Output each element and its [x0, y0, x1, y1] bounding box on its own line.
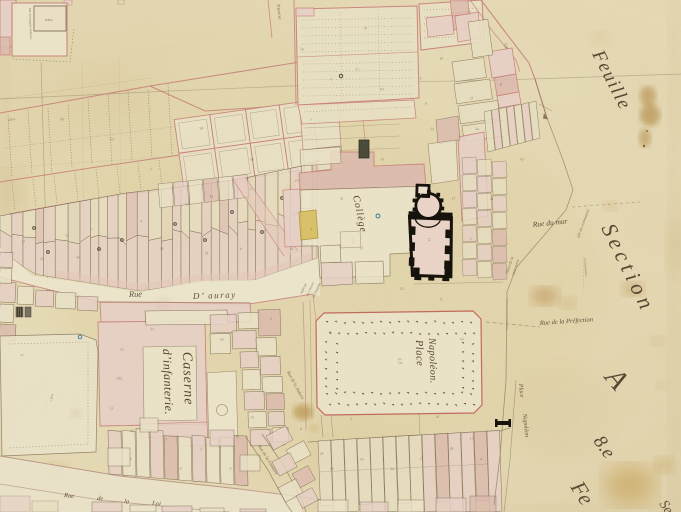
- svg-text:19: 19: [295, 179, 299, 183]
- svg-text:9: 9: [240, 247, 242, 251]
- svg-text:Place: Place: [413, 339, 425, 367]
- svg-text:17: 17: [470, 437, 474, 441]
- svg-text:41: 41: [490, 197, 494, 201]
- svg-text:54: 54: [300, 47, 304, 51]
- svg-text:Rue: Rue: [63, 492, 75, 500]
- svg-text:12: 12: [355, 67, 359, 71]
- svg-text:41: 41: [290, 247, 294, 251]
- svg-text:Rue: Rue: [128, 289, 143, 299]
- svg-text:Napoléon.: Napoléon.: [426, 337, 439, 384]
- svg-text:54: 54: [475, 127, 479, 131]
- svg-text:26: 26: [160, 247, 164, 251]
- svg-text:47: 47: [20, 353, 24, 357]
- svg-text:133: 133: [116, 376, 122, 381]
- svg-text:4: 4: [255, 347, 257, 351]
- svg-text:23: 23: [185, 202, 189, 206]
- svg-text:26: 26: [320, 452, 324, 456]
- svg-text:63: 63: [460, 337, 464, 341]
- svg-text:2: 2: [270, 317, 272, 321]
- svg-text:8 Bon: 8 Bon: [45, 18, 53, 22]
- svg-text:de: de: [97, 495, 104, 503]
- svg-text:23: 23: [150, 327, 154, 331]
- svg-text:31: 31: [40, 257, 44, 261]
- svg-text:17: 17: [282, 443, 286, 447]
- svg-text:23: 23: [400, 287, 404, 291]
- svg-text:26: 26: [330, 467, 334, 471]
- svg-text:23: 23: [130, 429, 134, 433]
- svg-text:d’infanterie.: d’infanterie.: [160, 349, 176, 416]
- svg-text:54: 54: [390, 467, 394, 471]
- svg-text:la: la: [124, 498, 130, 505]
- svg-text:Caserne: Caserne: [179, 352, 196, 406]
- svg-text:41: 41: [436, 415, 440, 419]
- svg-text:D’ auray: D’ auray: [192, 289, 237, 301]
